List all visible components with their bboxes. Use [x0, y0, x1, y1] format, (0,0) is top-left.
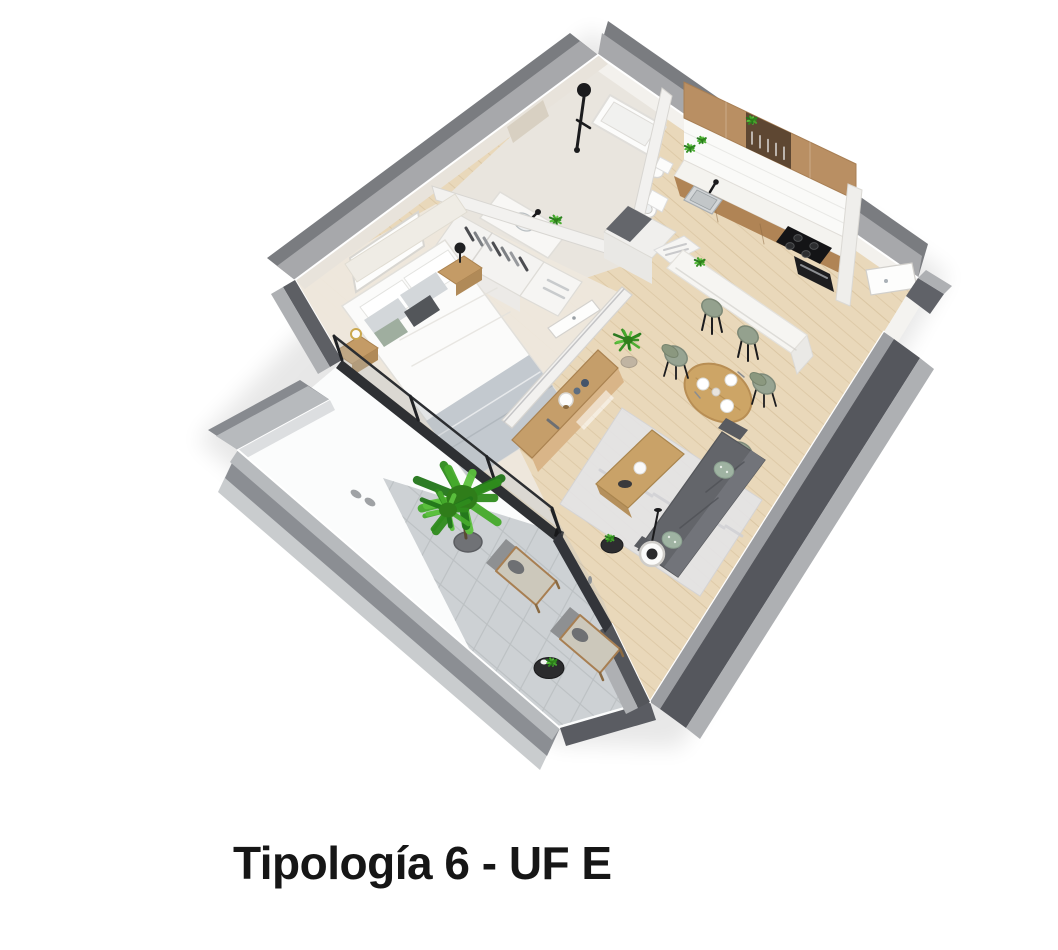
floor-plan-render	[0, 0, 1058, 950]
lamp	[351, 329, 361, 339]
table-lamp	[559, 393, 573, 407]
plan-caption: Tipología 6 - UF E	[233, 836, 612, 890]
lamp	[455, 243, 466, 254]
outdoor-table	[534, 658, 564, 679]
floor-plan-page: Tipología 6 - UF E	[0, 0, 1058, 950]
